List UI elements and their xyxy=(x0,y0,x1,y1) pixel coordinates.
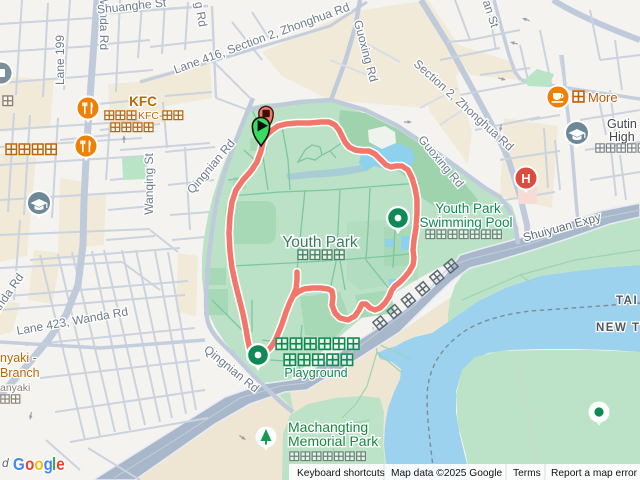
svg-text:d: d xyxy=(2,456,9,470)
svg-text:Lane 199: Lane 199 xyxy=(53,35,67,85)
svg-text:nyaki -: nyaki - xyxy=(0,351,37,365)
svg-text:Youth Park: Youth Park xyxy=(435,201,501,216)
svg-text:High: High xyxy=(609,130,635,144)
svg-text:o: o xyxy=(25,454,34,475)
svg-text:Gutin: Gutin xyxy=(607,117,637,131)
svg-text:TAI: TAI xyxy=(616,295,638,307)
svg-text:Wanqing St: Wanqing St xyxy=(142,153,156,215)
svg-text:Playground: Playground xyxy=(284,366,347,380)
svg-text:Youth Park: Youth Park xyxy=(282,234,358,251)
svg-text:KFC: KFC xyxy=(129,94,157,109)
svg-text:Branch: Branch xyxy=(0,366,40,380)
svg-text:e: e xyxy=(56,454,64,475)
svg-text:Memorial Park: Memorial Park xyxy=(288,433,379,449)
svg-text:Swimming Pool: Swimming Pool xyxy=(419,215,512,230)
svg-text:Report a map error: Report a map error xyxy=(551,468,638,479)
svg-text:G: G xyxy=(13,454,25,475)
svg-text:Terms: Terms xyxy=(513,468,541,479)
svg-text:More: More xyxy=(588,90,618,105)
svg-text:NEW T: NEW T xyxy=(596,322,640,334)
svg-text:KFC-: KFC- xyxy=(138,110,163,122)
svg-text:o: o xyxy=(34,454,43,475)
svg-text:Keyboard shortcuts: Keyboard shortcuts xyxy=(297,468,385,479)
svg-text:H: H xyxy=(521,171,530,186)
svg-text:anyaki: anyaki xyxy=(0,382,30,394)
svg-text:Map data ©2025 Google: Map data ©2025 Google xyxy=(391,468,502,479)
